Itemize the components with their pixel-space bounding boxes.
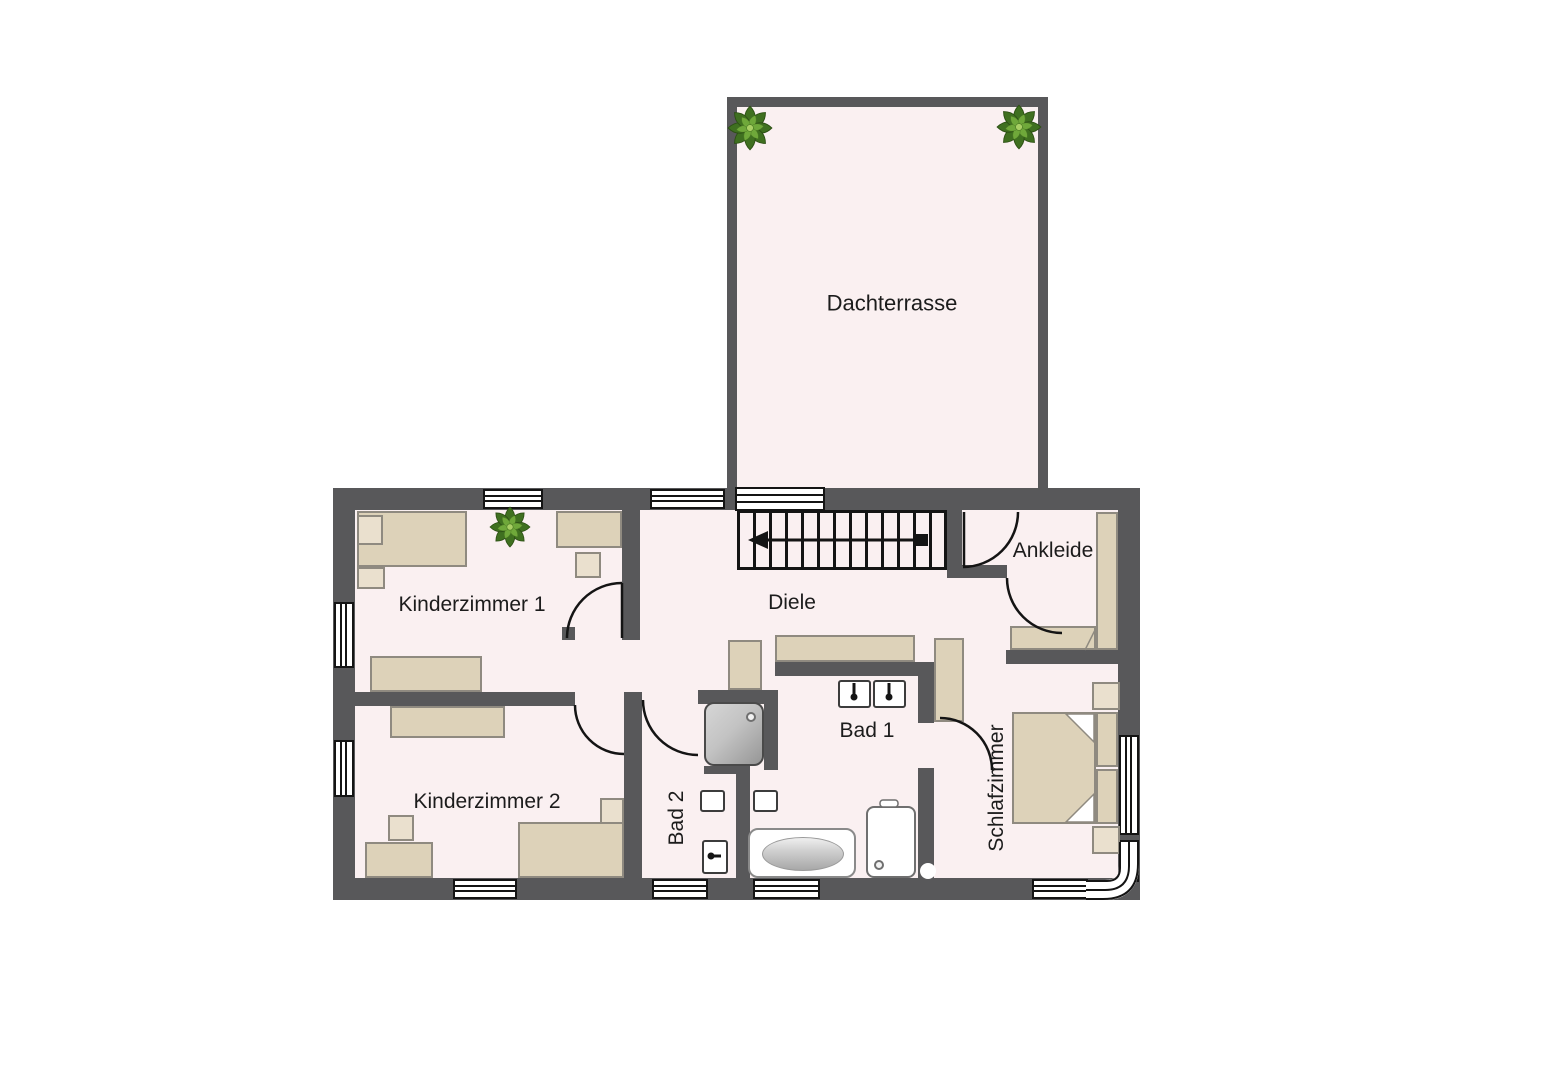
pillow — [357, 515, 383, 545]
toilet — [753, 790, 778, 812]
dresser — [370, 656, 482, 692]
toilet — [700, 790, 725, 812]
wardrobe — [390, 706, 505, 738]
wall — [764, 704, 778, 770]
staircase — [737, 510, 947, 570]
wall — [333, 488, 355, 900]
nightstand — [1092, 682, 1120, 710]
shower-tray — [704, 702, 764, 766]
wall — [704, 766, 750, 774]
terrace-door-window — [735, 487, 825, 511]
wall — [1006, 650, 1118, 664]
wall — [624, 692, 642, 878]
drain-icon — [746, 712, 756, 722]
wardrobe — [1010, 626, 1096, 650]
wall — [918, 768, 934, 878]
room-label-schlafzimmer: Schlafzimmer — [985, 724, 1009, 851]
wall — [947, 565, 1007, 578]
window — [483, 489, 543, 509]
pillow — [600, 798, 624, 824]
room-label-bad2: Bad 2 — [665, 791, 689, 846]
wall — [1118, 488, 1140, 900]
sideboard — [775, 635, 915, 662]
wall — [1038, 97, 1048, 488]
window — [334, 602, 354, 668]
chair — [575, 552, 601, 578]
cabinet — [934, 638, 964, 722]
window — [1119, 840, 1139, 882]
wall — [727, 97, 1048, 107]
room-label-diele: Diele — [768, 591, 816, 615]
window — [334, 740, 354, 797]
window — [652, 879, 708, 899]
nightstand — [357, 567, 385, 589]
chair — [388, 815, 414, 841]
shower-enclosure — [866, 806, 916, 878]
desk — [556, 511, 622, 548]
wall — [947, 510, 962, 568]
window — [1119, 735, 1139, 835]
sink — [873, 680, 906, 708]
window — [1032, 879, 1088, 899]
cabinet — [728, 640, 762, 690]
room-label-ankleide: Ankleide — [1013, 539, 1094, 563]
wall — [775, 662, 918, 676]
double-bed — [1012, 712, 1096, 824]
wall — [355, 692, 575, 706]
drain-icon — [874, 860, 884, 870]
room-label-kinderzimmer2: Kinderzimmer 2 — [413, 790, 560, 814]
bed — [518, 822, 624, 878]
room-label-bad1: Bad 1 — [840, 719, 895, 743]
wall — [622, 510, 640, 640]
wall — [918, 662, 934, 723]
room-label-kinderzimmer1: Kinderzimmer 1 — [398, 593, 545, 617]
bathtub — [748, 828, 856, 878]
window — [753, 879, 820, 899]
wall — [727, 97, 737, 488]
nightstand — [1092, 826, 1120, 854]
sink — [838, 680, 871, 708]
room-label-dachterrasse: Dachterrasse — [827, 290, 958, 315]
desk — [365, 842, 433, 878]
window — [650, 489, 725, 509]
headboard — [1096, 769, 1118, 824]
column-dot — [920, 863, 936, 879]
bathtub-basin — [762, 837, 844, 871]
floor-plan-canvas: Dachterrasse Kinderzimmer 1 Kinderzimmer… — [0, 0, 1556, 1080]
wall — [562, 627, 575, 640]
wardrobe — [1096, 512, 1118, 650]
headboard — [1096, 712, 1118, 767]
window — [453, 879, 517, 899]
sink — [702, 840, 728, 874]
